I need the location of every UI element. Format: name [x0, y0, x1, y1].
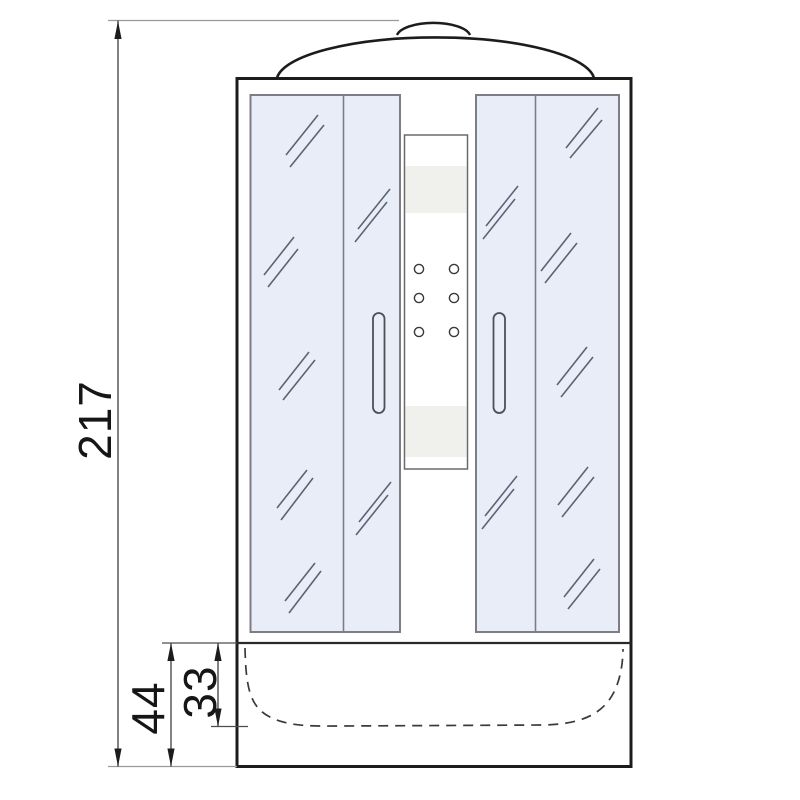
door-handle-right [494, 313, 506, 413]
cabin-dome-cap [397, 23, 470, 35]
dimension-label-total-height: 217 [69, 380, 121, 460]
glass-group-right [476, 95, 619, 632]
hydromassage-jet [449, 293, 458, 302]
cabin-dome [277, 37, 594, 78]
column-band-top [406, 166, 467, 213]
dimension-label-base-height: 44 [122, 681, 174, 734]
shower-cabin-technical-drawing: 217 44 33 [0, 0, 800, 800]
arrow-down-icon [167, 749, 174, 767]
arrow-up-icon [214, 643, 221, 661]
glass-group-left [251, 95, 401, 632]
hydromassage-jet [414, 264, 423, 273]
hydromassage-jet [449, 327, 458, 336]
arrow-down-icon [114, 749, 121, 767]
arrow-up-icon [167, 643, 174, 661]
arrow-up-icon [114, 21, 121, 39]
drawing-canvas: 217 44 33 [0, 0, 800, 800]
hydromassage-jet [449, 264, 458, 273]
column-band-bottom [406, 406, 467, 457]
hydromassage-column [405, 135, 468, 469]
door-handle-left [373, 313, 385, 413]
hydromassage-jet [414, 293, 423, 302]
cabin [237, 23, 631, 767]
hydromassage-jet [414, 327, 423, 336]
dimension-label-tray-inner-height: 33 [174, 665, 226, 718]
